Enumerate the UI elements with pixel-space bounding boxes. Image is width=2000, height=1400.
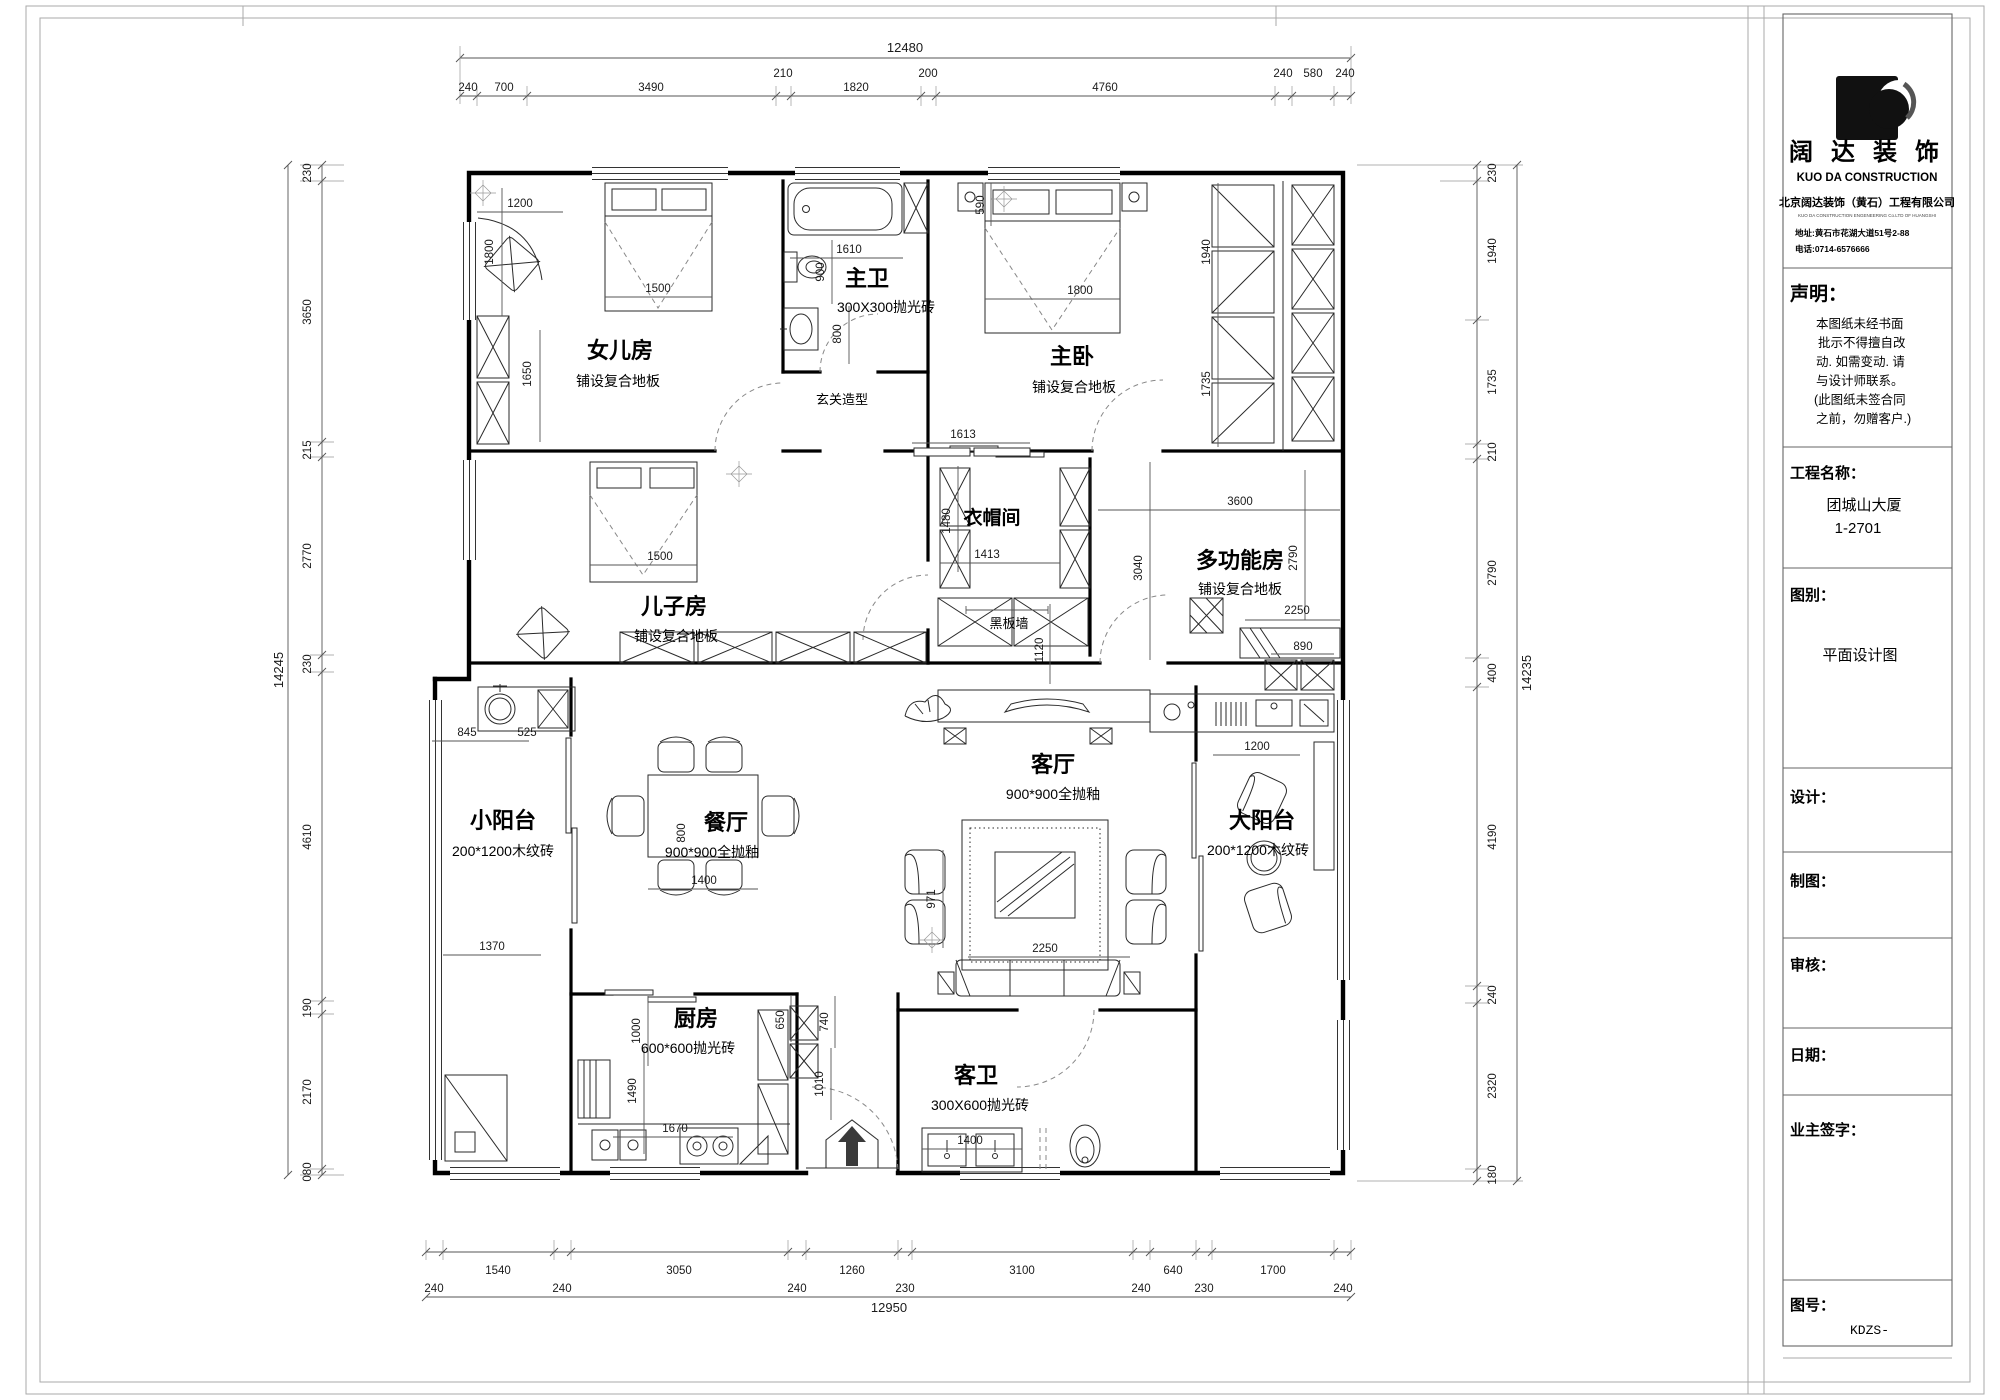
svg-text:230: 230 — [302, 163, 314, 182]
svg-text:200*1200木纹砖: 200*1200木纹砖 — [452, 843, 554, 859]
svg-text:580: 580 — [1303, 68, 1322, 80]
svg-text:525: 525 — [517, 727, 536, 739]
project-unit: 1-2701 — [1835, 520, 1882, 537]
svg-text:210: 210 — [773, 68, 792, 80]
statement-label: 声明： — [1789, 282, 1847, 305]
sliding-doors — [566, 446, 1203, 1002]
svg-text:铺设复合地板: 铺设复合地板 — [1032, 379, 1116, 395]
svg-text:3050: 3050 — [666, 1265, 692, 1277]
svg-text:300X600抛光砖: 300X600抛光砖 — [931, 1097, 1029, 1113]
company-name-cn: 北京阔达装饰（黄石）工程有限公司 — [1779, 195, 1955, 209]
dim-left-total: 14245 — [271, 652, 286, 688]
room-master-bedroom: 主卧 — [1050, 344, 1094, 369]
dim-right-total: 14235 — [1519, 655, 1534, 691]
svg-text:(此图纸未签合同: (此图纸未签合同 — [1814, 392, 1906, 407]
svg-text:2790: 2790 — [1288, 545, 1300, 571]
svg-text:210: 210 — [1487, 442, 1499, 461]
svg-text:900: 900 — [815, 262, 827, 281]
svg-text:1200: 1200 — [1244, 741, 1270, 753]
svg-text:240: 240 — [424, 1283, 443, 1295]
drawing-type-label: 图别： — [1790, 587, 1835, 604]
svg-text:铺设复合地板: 铺设复合地板 — [1198, 581, 1282, 597]
room-dining: 餐厅 — [704, 810, 748, 835]
svg-text:2320: 2320 — [1487, 1073, 1499, 1099]
svg-text:3040: 3040 — [1133, 555, 1145, 581]
room-master-bath: 主卫 — [845, 266, 889, 291]
dim-chain-left: 230 3650 215 2770 230 4610 190 2170 080 … — [271, 161, 344, 1182]
svg-text:1480: 1480 — [941, 508, 953, 534]
sink-master-icon — [780, 308, 818, 350]
company-logo-icon — [1836, 76, 1920, 140]
daybed-multiroom — [1240, 628, 1340, 658]
company-phone: 电话:0714-6576666 — [1795, 244, 1870, 254]
company-name-en: KUO DA CONSTRUCTION ENGENEERING Co.LTD O… — [1798, 213, 1936, 218]
tv-wall — [905, 690, 1150, 744]
svg-text:1490: 1490 — [627, 1078, 639, 1104]
svg-text:1400: 1400 — [957, 1135, 983, 1147]
drawing-no-label: 图号： — [1790, 1297, 1835, 1314]
drawing-type: 平面设计图 — [1822, 647, 1897, 664]
svg-text:200*1200木纹砖: 200*1200木纹砖 — [1207, 842, 1309, 858]
drawing-no-value: KDZS- — [1850, 1323, 1889, 1338]
dim-chain-bottom: 240 1540 240 3050 240 1260 230 3100 240 … — [422, 1240, 1355, 1315]
svg-text:2250: 2250 — [1032, 943, 1058, 955]
svg-text:1670: 1670 — [662, 1123, 688, 1135]
svg-text:3490: 3490 — [638, 82, 664, 94]
svg-text:1540: 1540 — [485, 1265, 511, 1277]
svg-text:1735: 1735 — [1201, 371, 1213, 397]
svg-text:1613: 1613 — [950, 429, 976, 441]
company-address: 地址:黄石市花湖大道51号2-88 — [1795, 228, 1910, 238]
svg-text:3600: 3600 — [1227, 496, 1253, 508]
svg-text:动. 如需变动. 请: 动. 如需变动. 请 — [1816, 354, 1905, 369]
svg-text:800: 800 — [832, 324, 844, 343]
balcony-small-fixtures — [445, 684, 575, 1161]
svg-text:1800: 1800 — [484, 239, 496, 265]
svg-text:230: 230 — [895, 1283, 914, 1295]
title-block: 阔 达 装 饰 KUO DA CONSTRUCTION 北京阔达装饰（黄石）工程… — [1779, 14, 1955, 1358]
room-kitchen: 厨房 — [674, 1006, 718, 1031]
svg-text:1650: 1650 — [522, 361, 534, 387]
svg-text:1820: 1820 — [843, 82, 869, 94]
svg-text:3100: 3100 — [1009, 1265, 1035, 1277]
svg-text:1700: 1700 — [1260, 1265, 1286, 1277]
svg-text:300X300抛光砖: 300X300抛光砖 — [837, 299, 935, 315]
svg-text:900*900全抛釉: 900*900全抛釉 — [665, 844, 759, 860]
svg-text:1413: 1413 — [974, 549, 1000, 561]
svg-text:之前，勿赠客户.): 之前，勿赠客户.) — [1816, 411, 1911, 426]
svg-text:240: 240 — [1333, 1283, 1352, 1295]
room-small-balcony: 小阳台 — [470, 808, 536, 833]
svg-text:1800: 1800 — [1067, 285, 1093, 297]
svg-text:2790: 2790 — [1487, 560, 1499, 586]
svg-text:1010: 1010 — [814, 1071, 826, 1097]
svg-text:650: 650 — [775, 1010, 787, 1029]
svg-text:1610: 1610 — [836, 244, 862, 256]
dim-chain-right: 230 1940 1735 210 2790 400 4190 240 2320… — [1357, 161, 1534, 1185]
svg-text:1735: 1735 — [1487, 369, 1499, 395]
guest-bath-fixtures — [922, 1125, 1100, 1172]
annotation-entry-feature: 玄关造型 — [816, 392, 868, 407]
room-multifunction: 多功能房 — [1196, 548, 1284, 573]
svg-text:铺设复合地板: 铺设复合地板 — [634, 628, 718, 644]
project-name: 团城山大厦 — [1826, 497, 1901, 514]
svg-text:1200: 1200 — [507, 198, 533, 210]
room-living: 客厅 — [1031, 752, 1075, 777]
svg-text:3650: 3650 — [302, 299, 314, 325]
svg-text:1260: 1260 — [839, 1265, 865, 1277]
room-labels: 女儿房 铺设复合地板 主卫 300X300抛光砖 主卧 铺设复合地板 儿子房 铺… — [452, 266, 1309, 1113]
svg-text:600*600抛光砖: 600*600抛光砖 — [641, 1040, 735, 1056]
dim-chain-top: 12480 240 700 3490 210 1820 200 4760 240… — [456, 40, 1355, 106]
room-large-balcony: 大阳台 — [1229, 808, 1295, 833]
entry-arrow-icon — [806, 1120, 898, 1168]
svg-text:640: 640 — [1163, 1265, 1182, 1277]
svg-text:1940: 1940 — [1487, 238, 1499, 264]
project-label: 工程名称： — [1790, 464, 1865, 482]
svg-text:1120: 1120 — [1034, 638, 1046, 663]
room-son: 儿子房 — [640, 594, 707, 619]
svg-text:批示不得擅自改: 批示不得擅自改 — [1818, 335, 1906, 350]
svg-text:2250: 2250 — [1284, 605, 1310, 617]
svg-text:200: 200 — [918, 68, 937, 80]
wardrobe-boxes — [477, 183, 1334, 1154]
annotation-blackboard-wall: 黑板墙 — [989, 616, 1028, 631]
svg-text:4190: 4190 — [1487, 824, 1499, 850]
svg-text:1940: 1940 — [1201, 239, 1213, 265]
svg-text:240: 240 — [1335, 68, 1354, 80]
logo-subtitle: KUO DA CONSTRUCTION — [1797, 172, 1938, 184]
bathtub-icon — [788, 183, 902, 235]
drawing-sheet: 12480 240 700 3490 210 1820 200 4760 240… — [0, 0, 2000, 1400]
svg-text:845: 845 — [457, 727, 476, 739]
logo-title: 阔 达 装 饰 — [1789, 139, 1945, 166]
svg-text:180: 180 — [1487, 1165, 1499, 1184]
svg-text:与设计师联系。: 与设计师联系。 — [1816, 373, 1904, 388]
svg-text:240: 240 — [787, 1283, 806, 1295]
svg-text:本图纸未经书面: 本图纸未经书面 — [1816, 317, 1904, 331]
interior-dims: 1200 1800 1500 1650 1610 900 800 590 180… — [432, 183, 1340, 1154]
open-kitchen-counter — [1150, 694, 1334, 732]
svg-text:230: 230 — [1487, 163, 1499, 182]
svg-text:215: 215 — [302, 440, 314, 459]
room-guest-bath: 客卫 — [954, 1063, 998, 1088]
drafter-label: 制图： — [1790, 872, 1835, 890]
dim-top-total: 12480 — [887, 40, 923, 55]
svg-text:240: 240 — [1131, 1283, 1150, 1295]
room-cloakroom: 衣帽间 — [963, 506, 1020, 529]
ceiling-light-icons — [470, 180, 1017, 953]
svg-text:4760: 4760 — [1092, 82, 1118, 94]
svg-text:230: 230 — [1194, 1283, 1213, 1295]
svg-text:240: 240 — [552, 1283, 571, 1295]
svg-text:740: 740 — [819, 1012, 831, 1031]
svg-text:700: 700 — [494, 82, 513, 94]
svg-text:240: 240 — [458, 82, 477, 94]
svg-text:1500: 1500 — [645, 283, 671, 295]
svg-text:900*900全抛釉: 900*900全抛釉 — [1006, 786, 1100, 802]
svg-text:190: 190 — [302, 998, 314, 1017]
svg-text:800: 800 — [676, 823, 688, 842]
svg-text:1370: 1370 — [479, 941, 505, 953]
svg-text:230: 230 — [302, 654, 314, 673]
svg-text:971: 971 — [926, 889, 938, 908]
room-daughter: 女儿房 — [587, 338, 653, 363]
checker-label: 审核： — [1790, 956, 1835, 974]
svg-text:1500: 1500 — [647, 551, 673, 563]
svg-text:2770: 2770 — [302, 543, 314, 569]
svg-text:590: 590 — [975, 195, 987, 214]
svg-text:890: 890 — [1293, 641, 1312, 653]
designer-label: 设计： — [1790, 788, 1835, 806]
svg-text:240: 240 — [1487, 985, 1499, 1004]
svg-text:1400: 1400 — [691, 875, 717, 887]
dim-bottom-total: 12950 — [871, 1300, 907, 1315]
svg-text:2170: 2170 — [302, 1079, 314, 1105]
svg-text:铺设复合地板: 铺设复合地板 — [576, 373, 660, 389]
svg-text:400: 400 — [1487, 663, 1499, 682]
owner-signature-label: 业主签字： — [1790, 1121, 1865, 1139]
svg-text:240: 240 — [1273, 68, 1292, 80]
balcony-large-furniture — [1235, 742, 1334, 935]
svg-text:4610: 4610 — [302, 824, 314, 850]
date-label: 日期： — [1790, 1046, 1835, 1064]
svg-text:080: 080 — [302, 1162, 314, 1181]
